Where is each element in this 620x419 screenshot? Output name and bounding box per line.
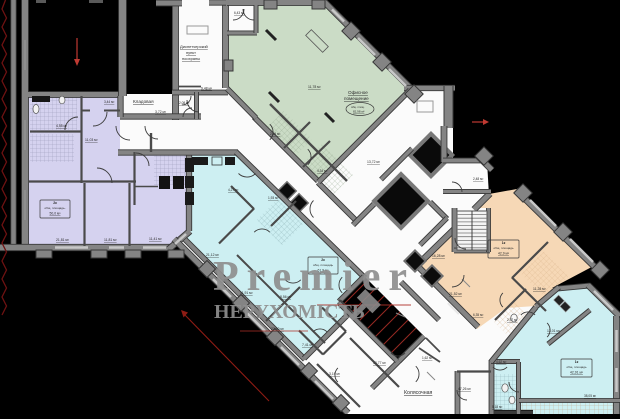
svg-text:помещение: помещение: [344, 96, 369, 101]
svg-text:Кладовая: Кладовая: [133, 99, 154, 104]
svg-text:5,18 м²: 5,18 м²: [492, 405, 502, 409]
svg-text:поохраны: поохраны: [182, 56, 200, 61]
svg-text:общ. площадь: общ. площадь: [566, 365, 586, 369]
svg-text:11,81 м²: 11,81 м²: [104, 238, 118, 242]
svg-text:9,48 м²: 9,48 м²: [201, 87, 213, 91]
svg-text:2,19 м²: 2,19 м²: [270, 132, 280, 136]
svg-text:11,41 м²: 11,41 м²: [149, 237, 163, 241]
svg-text:82,98 м²: 82,98 м²: [353, 110, 364, 114]
svg-text:общ. площадь: общ. площадь: [493, 246, 513, 250]
svg-text:11,28 м²: 11,28 м²: [533, 287, 547, 291]
svg-text:4,55 м²: 4,55 м²: [56, 124, 68, 128]
svg-text:Офисное: Офисное: [348, 90, 368, 95]
svg-text:общ. площ.: общ. площ.: [351, 105, 365, 109]
svg-text:47,26 м²: 47,26 м²: [458, 387, 472, 391]
svg-text:Колясочная: Колясочная: [404, 390, 433, 396]
svg-text:11,03 м²: 11,03 м²: [85, 138, 99, 142]
svg-text:6,35 м²: 6,35 м²: [473, 313, 483, 317]
svg-text:50,0 м²: 50,0 м²: [49, 211, 61, 215]
svg-text:7,41 м²: 7,41 м²: [302, 343, 314, 347]
svg-text:13,72 м²: 13,72 м²: [367, 160, 381, 164]
svg-text:23,50 м²: 23,50 м²: [271, 327, 285, 331]
svg-text:4,34 м²: 4,34 м²: [317, 169, 327, 173]
svg-text:Диспетчерский: Диспетчерский: [180, 44, 208, 49]
svg-text:4,27 м²: 4,27 м²: [228, 188, 238, 192]
svg-text:13,01 м²: 13,01 м²: [547, 329, 561, 333]
svg-text:6,43 м²: 6,43 м²: [234, 11, 244, 15]
svg-text:38,05 м²: 38,05 м²: [584, 394, 596, 398]
svg-text:11,78 м²: 11,78 м²: [308, 85, 322, 89]
svg-text:42,91 м²: 42,91 м²: [570, 370, 584, 374]
svg-text:НЕРУХОМІСТЬ: НЕРУХОМІСТЬ: [214, 301, 366, 323]
svg-text:4,62 м²: 4,62 м²: [496, 360, 506, 364]
svg-text:1к: 1к: [575, 360, 579, 364]
svg-text:1,93 м²: 1,93 м²: [268, 196, 278, 200]
svg-text:3,19 м²: 3,19 м²: [329, 372, 341, 376]
svg-text:2,08 м²: 2,08 м²: [179, 101, 189, 105]
svg-text:общ. площадь-: общ. площадь-: [44, 206, 65, 210]
svg-text:1,62 м²: 1,62 м²: [422, 356, 432, 360]
svg-text:пункт: пункт: [186, 50, 196, 55]
svg-text:2,97 м²: 2,97 м²: [507, 318, 517, 322]
svg-text:2,48 м²: 2,48 м²: [473, 177, 483, 181]
svg-text:16,28 м²: 16,28 м²: [432, 254, 446, 258]
svg-text:1к: 1к: [502, 241, 506, 245]
svg-text:42,9 м²: 42,9 м²: [498, 251, 510, 255]
svg-text:21,52 м²: 21,52 м²: [449, 292, 463, 296]
svg-text:3,44 м²: 3,44 м²: [104, 100, 114, 104]
svg-text:3,72 м²: 3,72 м²: [155, 110, 167, 114]
svg-text:13,77 м²: 13,77 м²: [373, 361, 387, 365]
svg-text:21,81 м²: 21,81 м²: [56, 238, 70, 242]
svg-text:2к: 2к: [53, 201, 57, 205]
